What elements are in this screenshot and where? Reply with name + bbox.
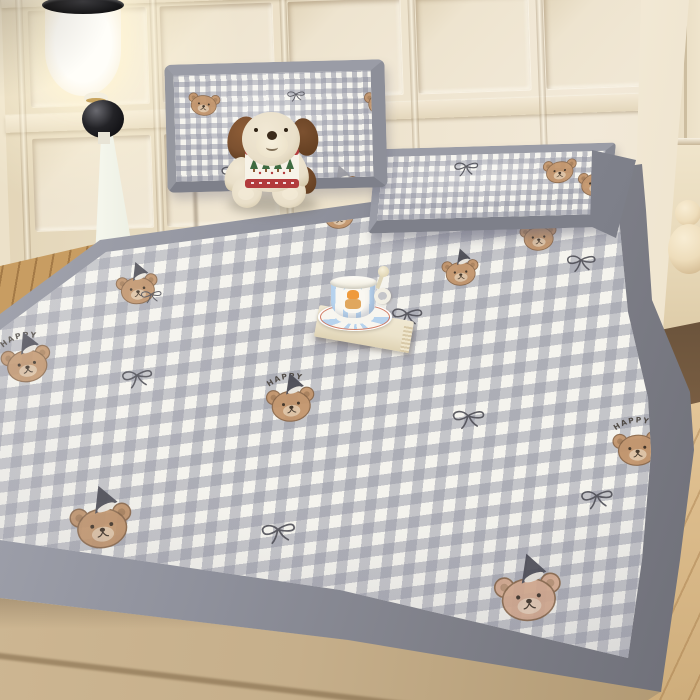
bow-motif-svg xyxy=(284,87,308,104)
plush-eye-left xyxy=(254,128,258,132)
wall-panel xyxy=(415,0,530,93)
bow-motif-svg xyxy=(451,157,481,180)
bear-motif-svg xyxy=(358,72,388,121)
plush-mouth xyxy=(266,144,278,151)
pillow-right xyxy=(368,143,616,234)
bedroom-product-photo: HAPPY HAPPY xyxy=(0,0,700,700)
pillow-right-motifs xyxy=(377,151,605,220)
wall-panel xyxy=(543,0,654,89)
cup-art-body xyxy=(345,299,361,309)
vase xyxy=(675,200,700,226)
plush-eye-right xyxy=(284,128,288,132)
lamp-neck xyxy=(98,132,110,144)
lamp-shade xyxy=(45,4,121,96)
plush-nose xyxy=(267,131,277,140)
bear-motif xyxy=(358,72,388,77)
cup-bear-art xyxy=(341,287,365,313)
plush-paw-pad xyxy=(238,188,254,200)
bear-motif xyxy=(188,77,226,81)
bow-motif xyxy=(284,87,306,89)
coffee-cup-setting xyxy=(300,255,430,365)
plush-puppy xyxy=(220,104,330,220)
cup-rim xyxy=(330,276,377,289)
bear-motif-svg xyxy=(540,143,580,189)
spoon-ball xyxy=(378,266,389,277)
cup-art-head xyxy=(347,290,359,299)
bow-motif xyxy=(451,157,481,160)
